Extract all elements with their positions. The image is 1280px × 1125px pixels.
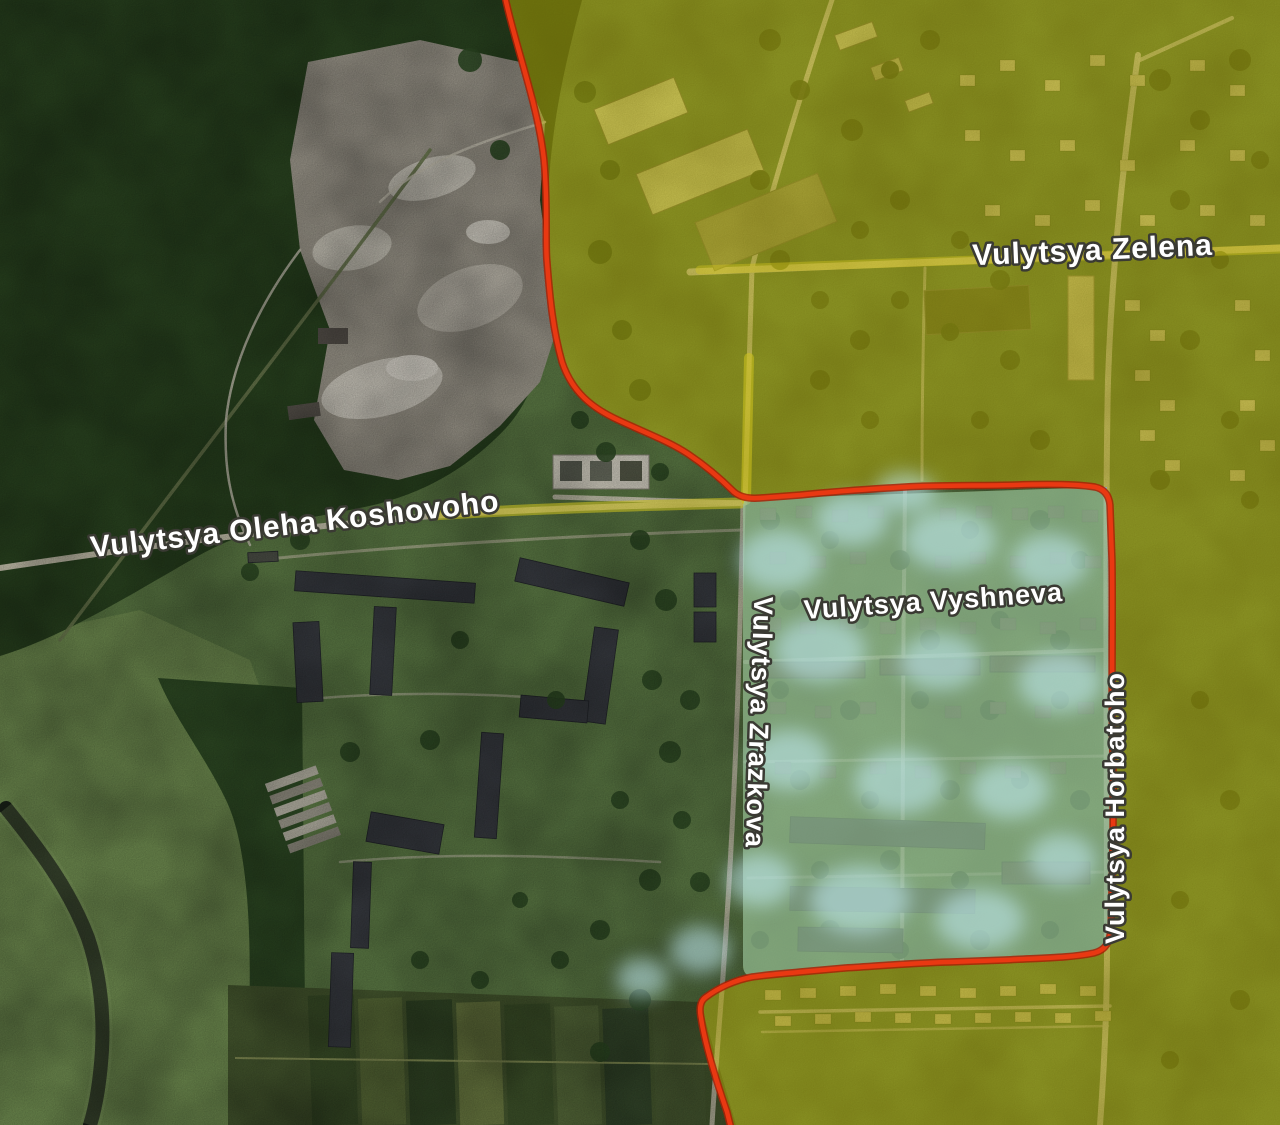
satellite-map-viewport: Vulytsya Zelena Vulytsya Oleha Koshovoho… — [0, 0, 1280, 1125]
yellow-corridor-zrazkova-north — [746, 358, 749, 500]
street-label-horbatoho: Vulytsya Horbatoho — [1100, 672, 1130, 944]
satellite-map: Vulytsya Zelena Vulytsya Oleha Koshovoho… — [0, 0, 1280, 1125]
